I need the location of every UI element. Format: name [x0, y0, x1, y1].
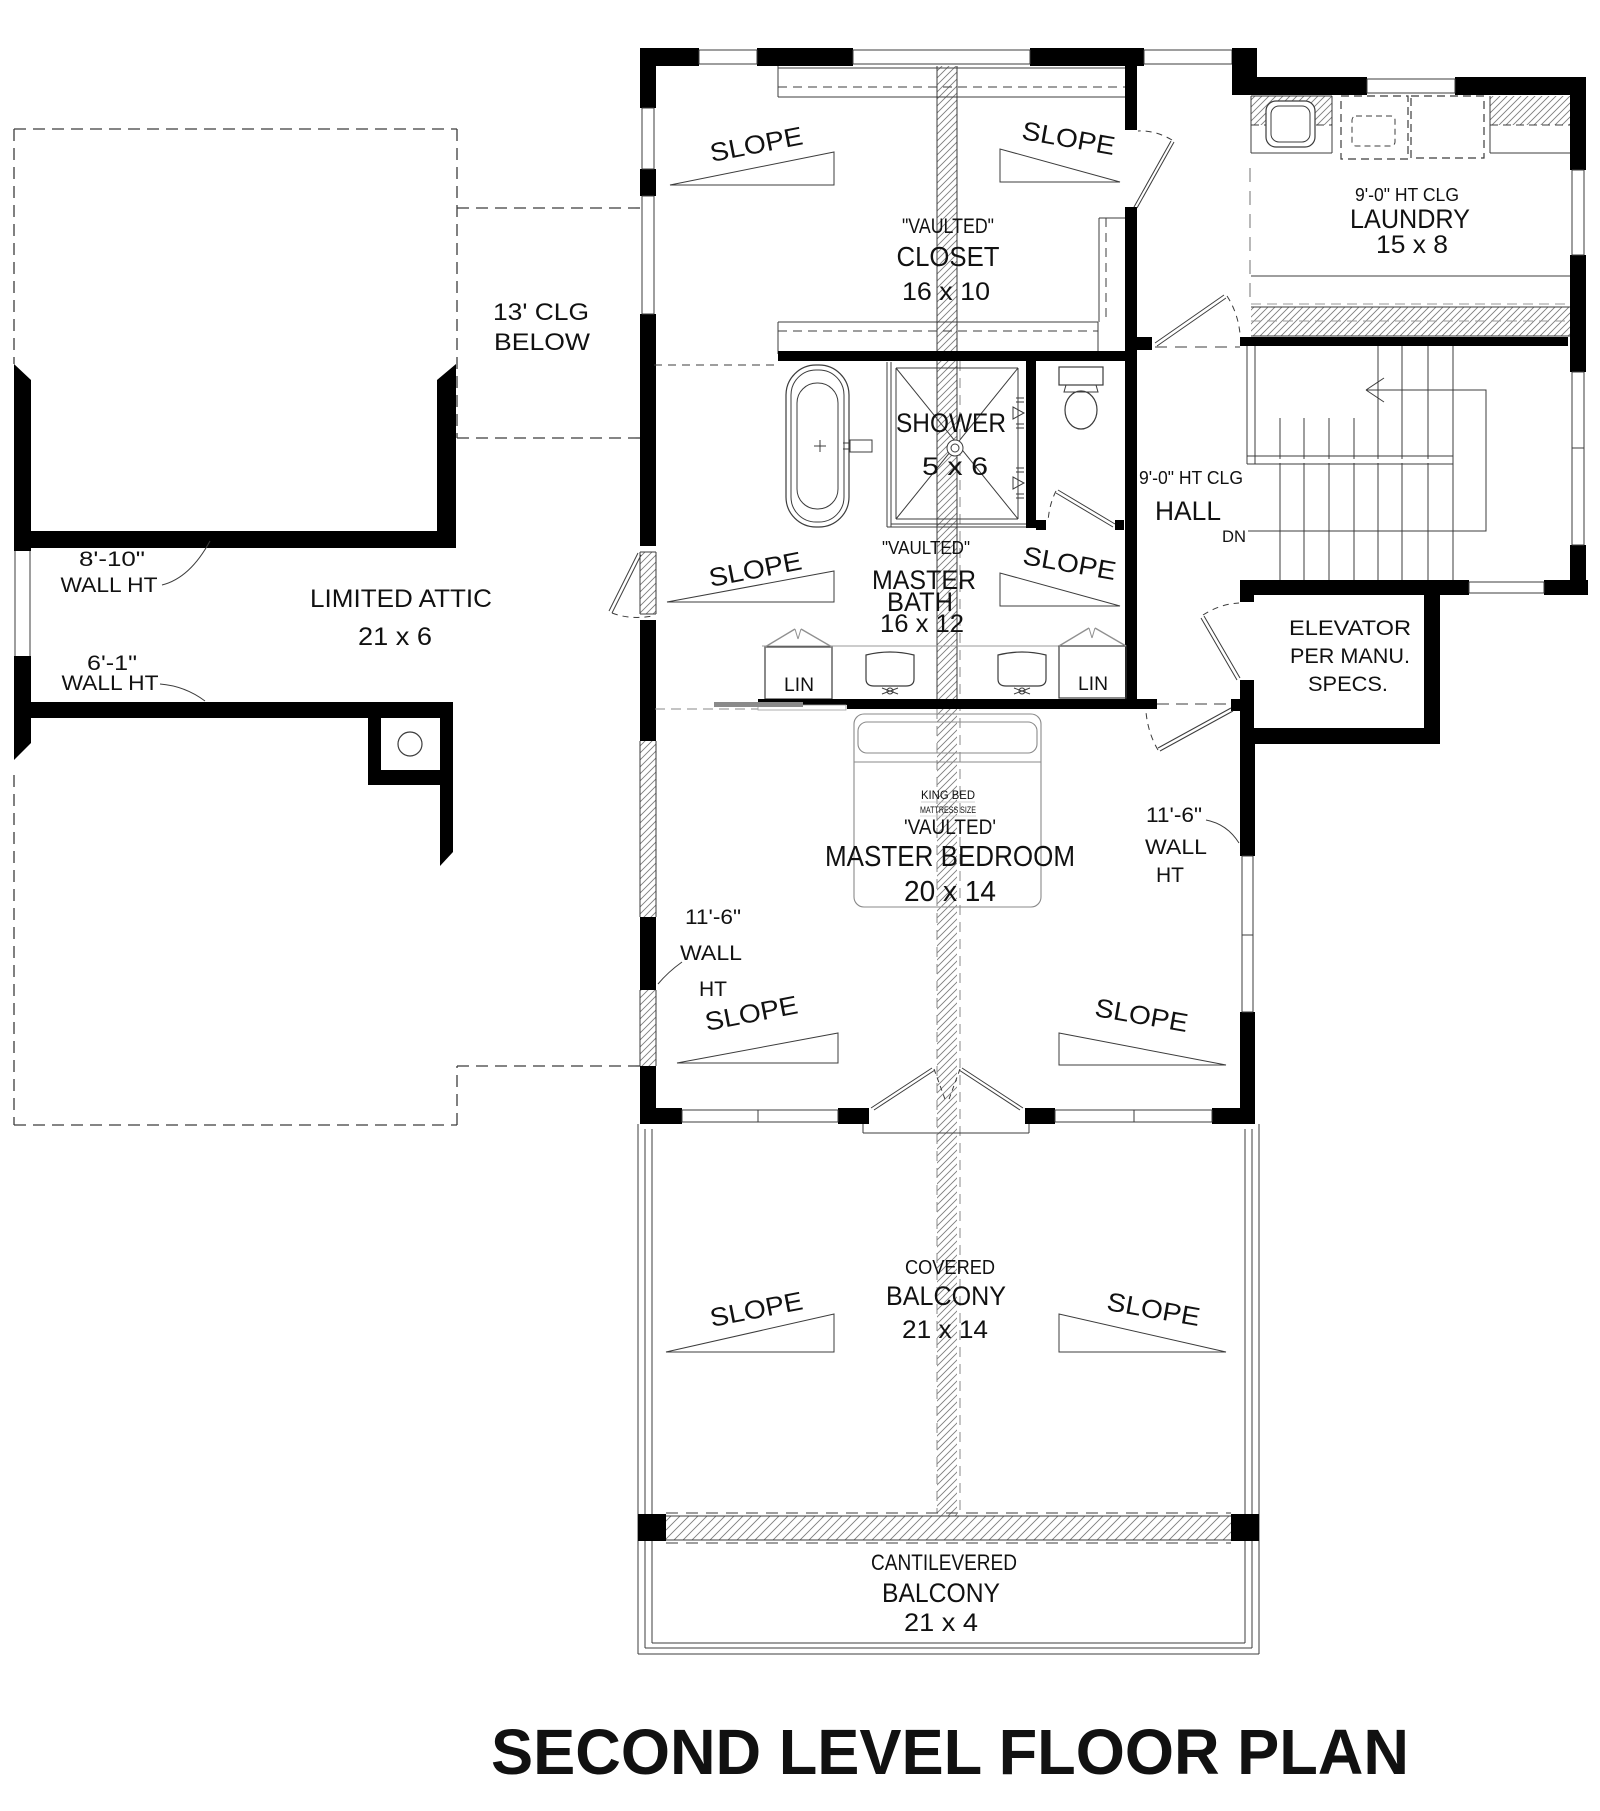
svg-text:13' CLG: 13' CLG — [493, 299, 589, 326]
svg-text:MATTRESS SIZE: MATTRESS SIZE — [920, 805, 976, 815]
svg-text:"VAULTED": "VAULTED" — [882, 538, 970, 558]
svg-text:PER MANU.: PER MANU. — [1290, 645, 1410, 668]
svg-text:11'-6": 11'-6" — [685, 906, 741, 929]
svg-text:16 x 12: 16 x 12 — [880, 610, 964, 638]
svg-text:DN: DN — [1222, 527, 1246, 546]
svg-text:11'-6": 11'-6" — [1146, 804, 1202, 827]
svg-text:BALCONY: BALCONY — [882, 1578, 1000, 1608]
svg-text:21 x 14: 21 x 14 — [902, 1316, 988, 1344]
svg-text:WALL HT: WALL HT — [61, 574, 158, 597]
svg-text:SECOND LEVEL FLOOR PLAN: SECOND LEVEL FLOOR PLAN — [491, 1716, 1409, 1788]
svg-text:CLOSET: CLOSET — [897, 241, 1000, 272]
svg-text:HALL: HALL — [1155, 496, 1221, 526]
svg-text:CANTILEVERED: CANTILEVERED — [871, 1550, 1017, 1575]
svg-text:"VAULTED": "VAULTED" — [902, 215, 994, 238]
svg-text:21 x 6: 21 x 6 — [358, 623, 432, 651]
svg-text:HT: HT — [1156, 864, 1184, 887]
svg-text:9'-0" HT CLG: 9'-0" HT CLG — [1355, 185, 1459, 205]
svg-text:SPECS.: SPECS. — [1308, 673, 1388, 696]
svg-text:5 x 6: 5 x 6 — [922, 453, 988, 481]
svg-text:LIN: LIN — [784, 675, 814, 696]
svg-text:'VAULTED': 'VAULTED' — [904, 816, 996, 839]
svg-text:LAUNDRY: LAUNDRY — [1350, 204, 1470, 234]
svg-text:BELOW: BELOW — [494, 329, 590, 356]
svg-text:16 x 10: 16 x 10 — [902, 278, 990, 306]
svg-text:LIMITED ATTIC: LIMITED ATTIC — [310, 585, 492, 613]
svg-text:WALL: WALL — [1145, 836, 1207, 859]
svg-text:21 x 4: 21 x 4 — [904, 1609, 978, 1637]
svg-text:8'-10": 8'-10" — [79, 548, 145, 571]
svg-text:MASTER BEDROOM: MASTER BEDROOM — [825, 841, 1075, 873]
svg-text:BALCONY: BALCONY — [886, 1281, 1006, 1311]
svg-text:COVERED: COVERED — [905, 1257, 995, 1279]
svg-text:15 x 8: 15 x 8 — [1376, 231, 1448, 259]
svg-text:SHOWER: SHOWER — [896, 408, 1006, 438]
svg-text:20 x 14: 20 x 14 — [904, 876, 996, 908]
svg-text:KING BED: KING BED — [921, 788, 975, 802]
svg-text:9'-0" HT CLG: 9'-0" HT CLG — [1139, 468, 1243, 488]
svg-text:ELEVATOR: ELEVATOR — [1289, 617, 1411, 640]
svg-text:WALL HT: WALL HT — [62, 672, 159, 695]
svg-text:HT: HT — [699, 978, 727, 1001]
svg-text:WALL: WALL — [680, 942, 742, 965]
svg-text:LIN: LIN — [1078, 674, 1108, 695]
